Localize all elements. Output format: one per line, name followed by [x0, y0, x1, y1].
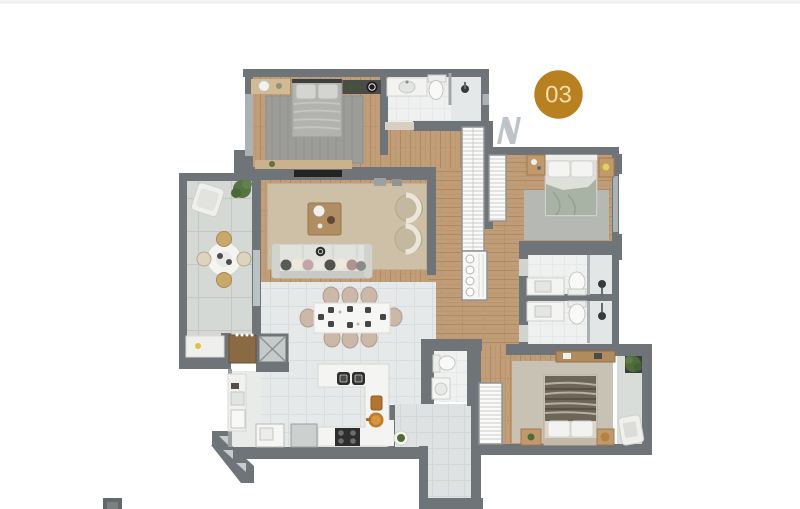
svg-text:03: 03	[545, 82, 572, 109]
